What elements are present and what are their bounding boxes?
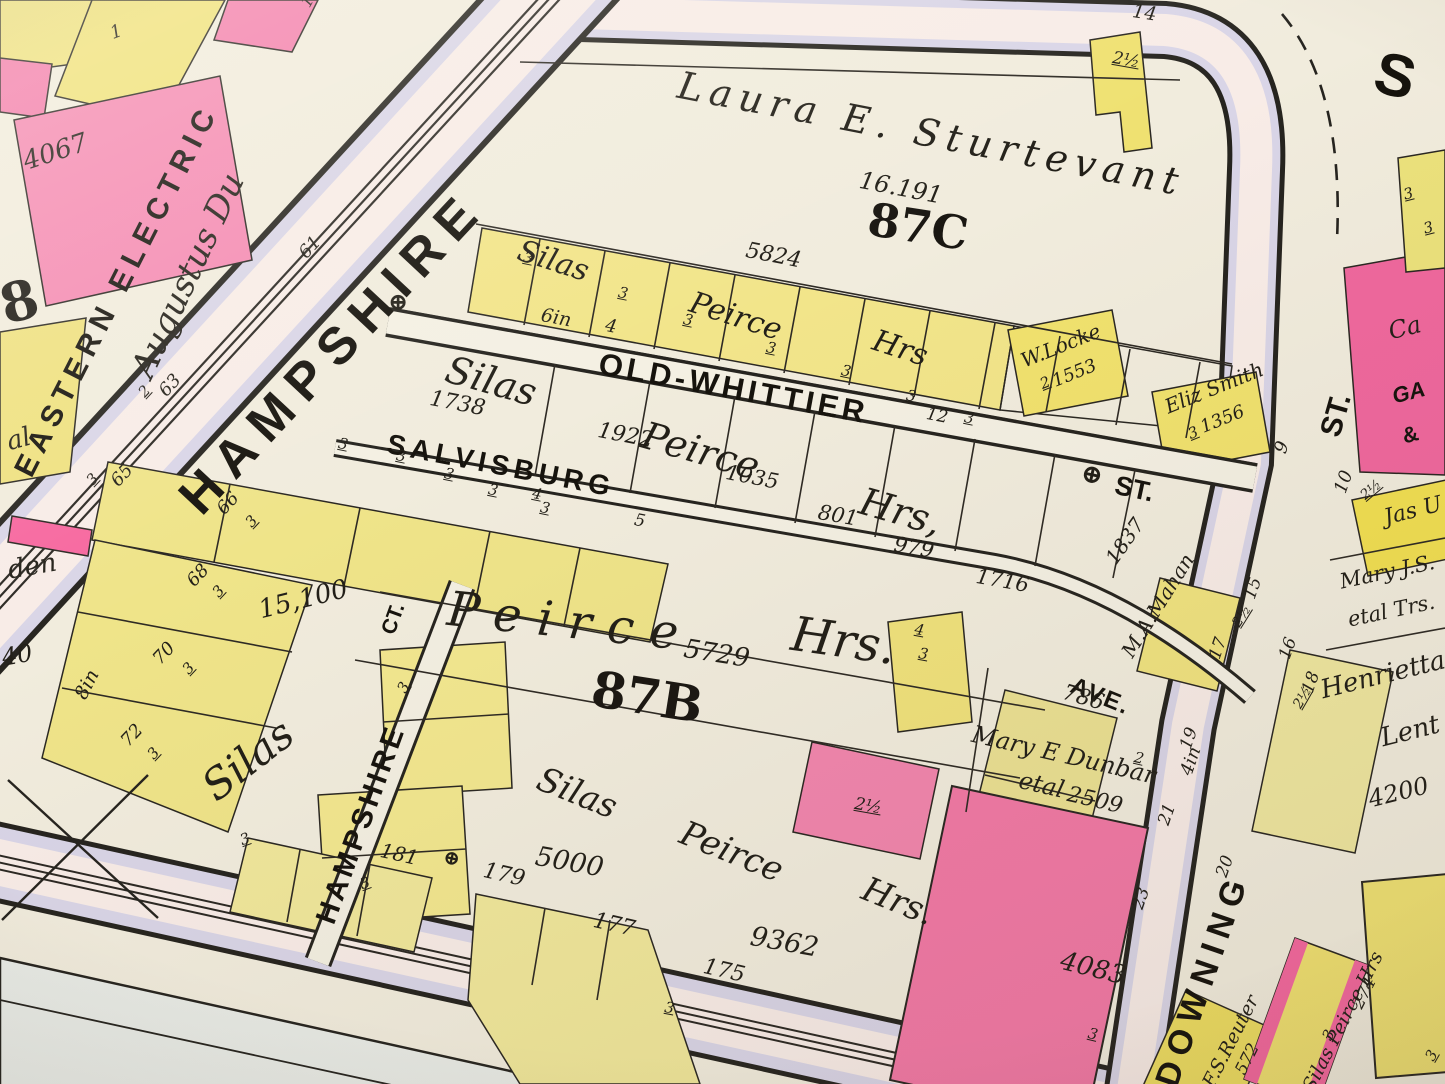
story-count-mark: 2½ bbox=[1111, 50, 1141, 71]
story-count-mark: 2½ bbox=[853, 796, 883, 817]
house-number-14: 14 bbox=[1131, 2, 1158, 25]
street-width-6in: 6in bbox=[539, 306, 572, 330]
monument-icon: ⊕ bbox=[388, 290, 408, 314]
lot-width-mark: 4 bbox=[913, 622, 925, 638]
atlas-map-photo: HAMPSHIRE OLD-WHITTIER SALVISBURG HAMPSH… bbox=[0, 0, 1445, 1084]
street-width-12: 12 bbox=[925, 406, 949, 427]
owner-fragment-den: den bbox=[6, 550, 59, 584]
owner-gas-line1: Ca bbox=[1386, 312, 1424, 343]
parcel-number-40: 40 bbox=[0, 641, 34, 670]
owner-hrs-87b: Hrs. bbox=[788, 610, 898, 672]
